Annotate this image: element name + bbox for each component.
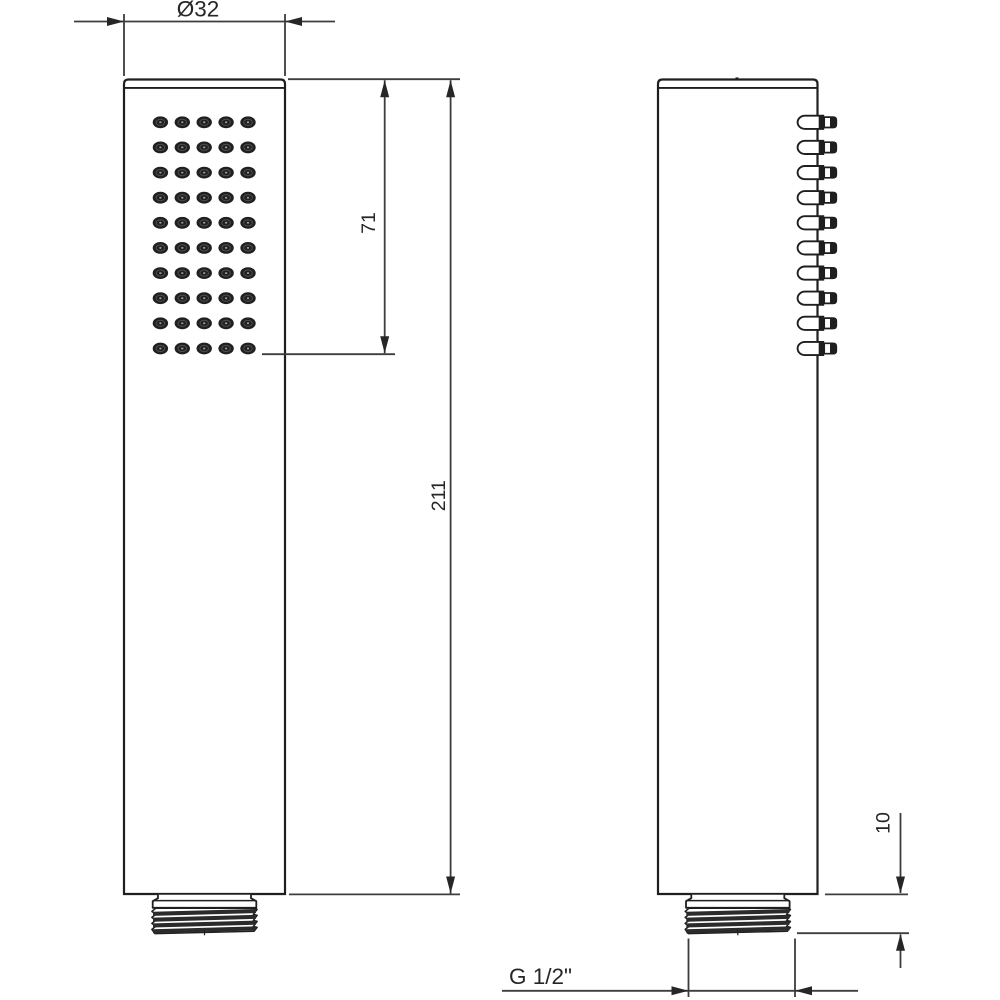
svg-text:71: 71	[358, 212, 380, 234]
svg-text:Ø32: Ø32	[177, 0, 220, 21]
svg-text:10: 10	[873, 812, 895, 834]
svg-text:211: 211	[428, 480, 450, 511]
svg-text:G 1/2": G 1/2"	[509, 964, 572, 989]
